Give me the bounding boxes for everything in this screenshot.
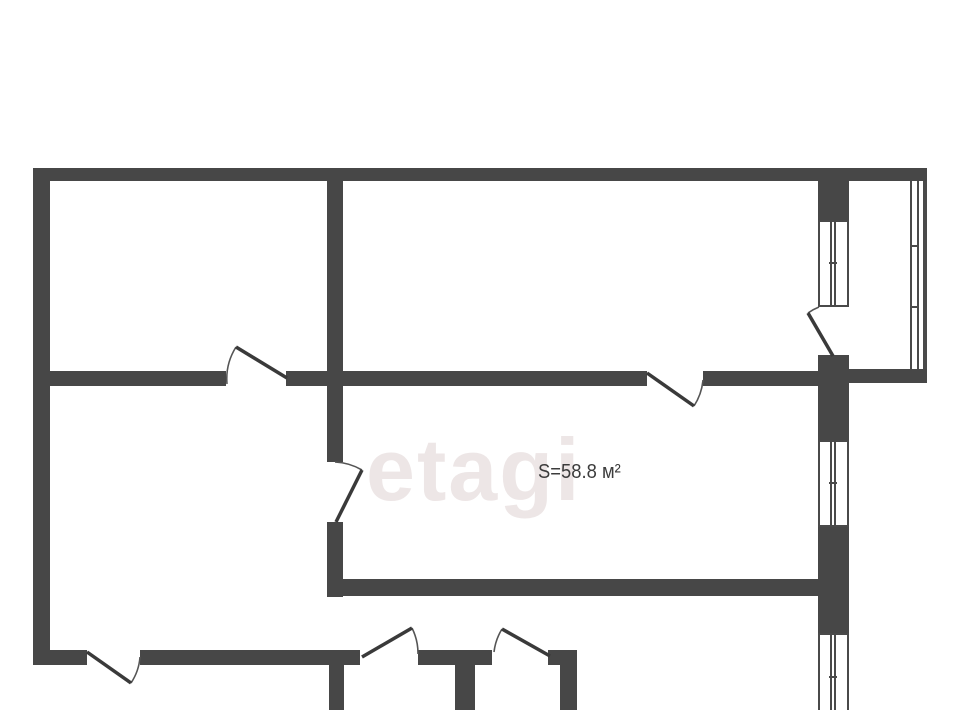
door-leaf	[362, 628, 412, 657]
door-leaf	[502, 629, 550, 656]
door-leaf	[236, 347, 287, 378]
door-arc	[808, 307, 819, 313]
door-swings-layer	[0, 0, 960, 710]
door-leaf	[808, 313, 833, 356]
door-leaf	[647, 373, 694, 406]
door-arc	[131, 657, 140, 683]
door-arc	[694, 380, 703, 406]
door-arc	[227, 347, 236, 384]
door-leaf	[336, 470, 362, 522]
door-leaf	[87, 652, 131, 683]
door-arc	[335, 462, 362, 470]
door-arc	[494, 629, 502, 652]
floor-plan: etagi S=58.8 м²	[0, 0, 960, 710]
door-arc	[412, 628, 418, 654]
